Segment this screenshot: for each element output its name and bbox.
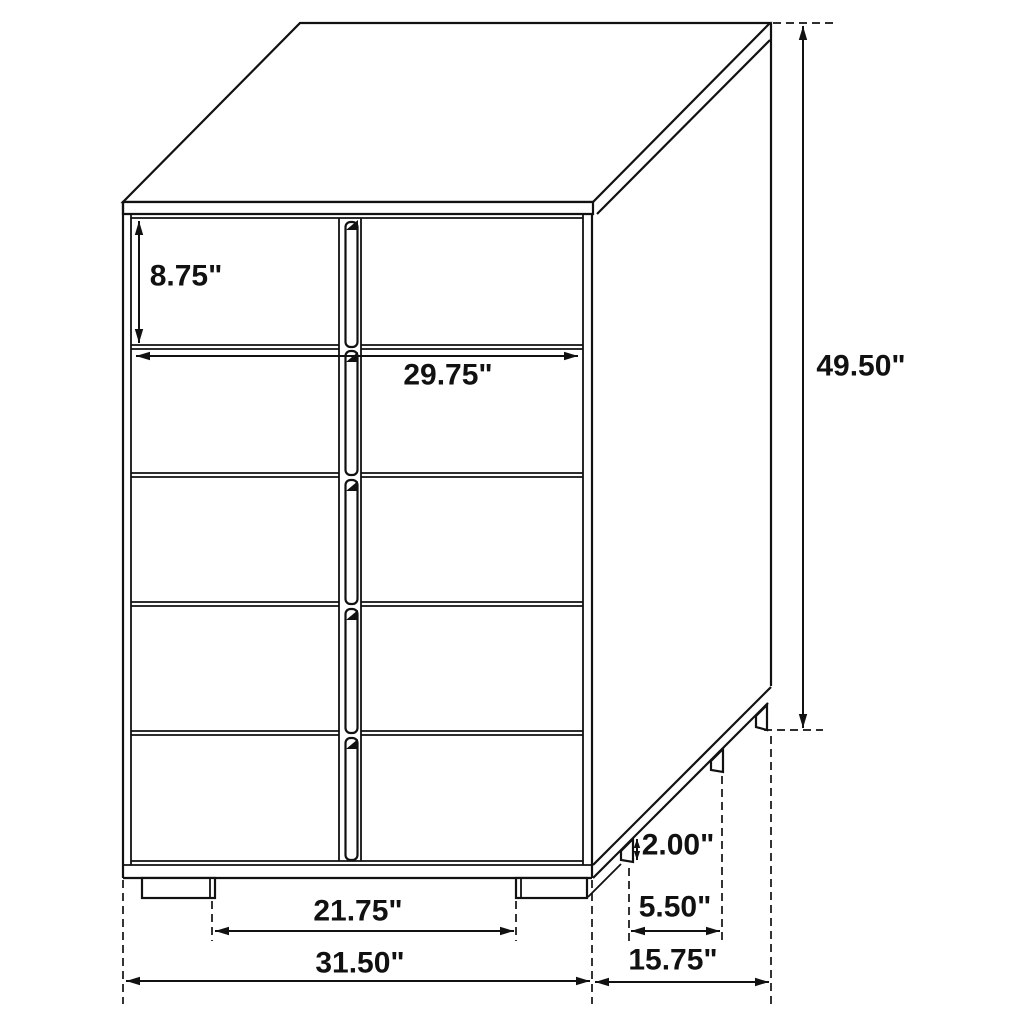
dimension-base-height: 2.00" bbox=[637, 829, 714, 862]
front-foot-right bbox=[516, 878, 587, 898]
drawer-handle-3 bbox=[346, 480, 359, 604]
foot-face bbox=[516, 878, 587, 898]
dimension-overall-depth: 15.75" bbox=[595, 944, 769, 983]
dim-label: 2.00" bbox=[642, 829, 715, 862]
dimension-foot-inset-depth: 5.50" bbox=[631, 891, 720, 932]
drawer-handle-4 bbox=[346, 609, 359, 733]
handle-bar bbox=[346, 351, 358, 475]
dim-label: 31.50" bbox=[315, 947, 404, 980]
front-foot-left bbox=[142, 878, 215, 898]
dim-label: 8.75" bbox=[150, 260, 223, 293]
handle-bar bbox=[346, 609, 358, 733]
drawer-handles bbox=[346, 220, 359, 860]
dim-label: 15.75" bbox=[628, 944, 717, 977]
feet bbox=[142, 705, 767, 898]
top-front-edge-band bbox=[123, 202, 593, 214]
dimension-diagram: 8.75" 29.75" 49.50" 2.00" 21.75" 5.50" 3… bbox=[0, 0, 1024, 1024]
cabinet-body bbox=[123, 23, 771, 878]
dimension-foot-span: 21.75" bbox=[215, 895, 514, 932]
handle-bar bbox=[346, 738, 358, 860]
top-surface bbox=[123, 23, 770, 202]
drawer-handle-2 bbox=[346, 351, 359, 475]
dim-label: 29.75" bbox=[403, 359, 492, 392]
drawer-area-bottom-lines bbox=[123, 861, 593, 865]
foot-face bbox=[142, 878, 215, 898]
handle-bar bbox=[346, 222, 358, 347]
chest-line-drawing: 8.75" 29.75" 49.50" 2.00" 21.75" 5.50" 3… bbox=[0, 0, 1024, 1024]
dimension-overall-width: 31.50" bbox=[126, 947, 590, 982]
dimension-drawer-height: 8.75" bbox=[139, 221, 222, 343]
dimension-overall-height: 49.50" bbox=[803, 26, 906, 728]
drawer-handle-5 bbox=[346, 738, 359, 860]
dim-label: 21.75" bbox=[313, 895, 402, 928]
drawer-handle-1 bbox=[346, 220, 359, 347]
dim-label: 49.50" bbox=[816, 350, 905, 383]
dim-label: 5.50" bbox=[639, 891, 712, 924]
handle-bar bbox=[346, 480, 358, 604]
